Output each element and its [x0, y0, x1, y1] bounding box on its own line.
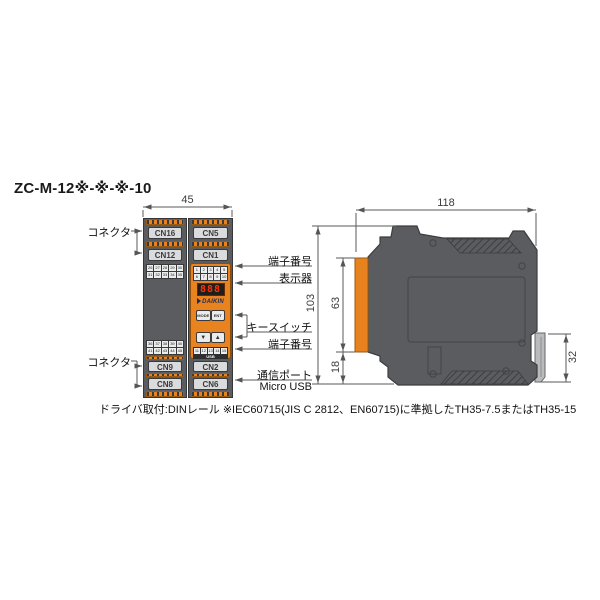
- terminal-number: 29: [169, 265, 175, 271]
- down-arrow-button: ▼: [196, 332, 211, 343]
- connector-cn16: CN16: [148, 227, 182, 239]
- terminal-number: 35: [177, 272, 183, 278]
- terminal-number: 32: [154, 272, 160, 278]
- front-left-module: CN16 CN12 2627282930 3132333435 36373839…: [143, 218, 187, 398]
- mounting-footnote: ドライバ取付:DINレール ※IEC60715(JIS C 2812、EN607…: [99, 401, 576, 417]
- terminal-number: 3: [208, 267, 214, 273]
- key-row-bottom: ▼ ▲: [196, 332, 225, 344]
- terminal-number: 5: [221, 267, 227, 273]
- drawing-linework: [0, 0, 600, 600]
- terminal-number: 30: [177, 265, 183, 271]
- terminal-number: 27: [154, 265, 160, 271]
- page-title: ZC-M-12※-※-※-10: [14, 179, 152, 197]
- usb-terminal-strip: 1112131415 USB: [193, 347, 228, 359]
- terminal-number: 2: [201, 267, 207, 273]
- callout-display: 表示器: [279, 270, 312, 286]
- connector-cn5: CN5: [193, 227, 228, 239]
- brand-name: DAIKIN: [202, 299, 224, 305]
- terminal-number: 39: [169, 341, 175, 347]
- pin-strip: [146, 391, 184, 397]
- control-panel: 12345 678910 888 DAIKIN MODE ENT ▼ ▲ 111…: [190, 263, 231, 359]
- front-face-strip: [355, 258, 368, 352]
- vent-hatch-bottom: [441, 371, 528, 384]
- terminal-number: 6: [194, 274, 200, 280]
- pin-strip: [191, 219, 230, 225]
- connector-cn8: CN8: [148, 378, 182, 390]
- pin-strip: [191, 241, 230, 247]
- pin-strip: [146, 373, 184, 377]
- mode-button: MODE: [196, 310, 211, 321]
- terminal-number-grid: 12345 678910: [193, 266, 228, 281]
- connector-cn6: CN6: [193, 378, 228, 390]
- pin-strip: [146, 219, 184, 225]
- connector-cn12: CN12: [148, 249, 182, 261]
- terminal-number: 10: [221, 274, 227, 280]
- terminal-number: 44: [169, 348, 175, 354]
- connector-cn9: CN9: [148, 361, 182, 372]
- connector-cn2: CN2: [193, 361, 228, 372]
- callout-micro-usb: Micro USB: [259, 381, 312, 393]
- dim-bottom-height: 18: [330, 352, 342, 382]
- pin-strip: [146, 356, 184, 360]
- connector-cn1: CN1: [193, 249, 228, 261]
- terminal-number: 41: [147, 348, 153, 354]
- key-row-top: MODE ENT: [196, 310, 225, 322]
- dim-front-face-height: 63: [330, 288, 342, 318]
- terminal-number: 26: [147, 265, 153, 271]
- dim-rail-height: 32: [567, 342, 579, 372]
- terminal-number: 14: [214, 348, 220, 354]
- terminal-number-grid-top: 2627282930 3132333435: [146, 264, 184, 279]
- terminal-number: 15: [221, 348, 227, 354]
- callout-terminal-no-top: 端子番号: [268, 253, 312, 269]
- callout-connector-bottom: コネクタ: [87, 354, 131, 370]
- dim-height: 103: [305, 288, 317, 318]
- terminal-number: 36: [147, 341, 153, 347]
- callout-connector-top: コネクタ: [87, 224, 131, 240]
- terminal-number: 8: [208, 274, 214, 280]
- terminal-number: 31: [147, 272, 153, 278]
- callout-terminal-no-bottom: 端子番号: [268, 336, 312, 352]
- catalog-drawing-page: ZC-M-12※-※-※-10 45 118 103 63 18 32 コネクタ…: [0, 0, 600, 600]
- terminal-number: 1: [194, 267, 200, 273]
- terminal-number: 45: [177, 348, 183, 354]
- up-arrow-button: ▲: [211, 332, 226, 343]
- terminal-number: 28: [162, 265, 168, 271]
- terminal-number: 37: [154, 341, 160, 347]
- side-view: [355, 226, 545, 385]
- pin-strip: [191, 391, 230, 397]
- front-view: CN16 CN12 2627282930 3132333435 36373839…: [143, 218, 233, 398]
- vent-hatch-top: [447, 239, 521, 253]
- callout-key-switch: キースイッチ: [247, 319, 312, 335]
- usb-label: USB: [194, 355, 227, 359]
- seven-segment-display: 888: [197, 283, 225, 296]
- dim-front-width: 45: [143, 194, 232, 206]
- terminal-number: 43: [162, 348, 168, 354]
- front-right-module: CN5 CN1 12345 678910 888 DAIKIN MODE ENT…: [188, 218, 233, 398]
- terminal-number: 9: [214, 274, 220, 280]
- terminal-number: 42: [154, 348, 160, 354]
- pin-strip: [146, 241, 184, 247]
- terminal-number: 11: [194, 348, 200, 354]
- terminal-number: 7: [201, 274, 207, 280]
- terminal-number: 34: [169, 272, 175, 278]
- dim-side-width: 118: [356, 197, 536, 209]
- ent-button: ENT: [211, 310, 226, 321]
- terminal-number: 38: [162, 341, 168, 347]
- daikin-flag-icon: [197, 298, 201, 304]
- terminal-number: 40: [177, 341, 183, 347]
- terminal-number: 4: [214, 267, 220, 273]
- terminal-number-grid-bottom: 3637383940 4142434445: [146, 340, 184, 355]
- terminal-number: 33: [162, 272, 168, 278]
- pin-strip: [191, 373, 230, 377]
- brand-logo: DAIKIN: [191, 298, 230, 306]
